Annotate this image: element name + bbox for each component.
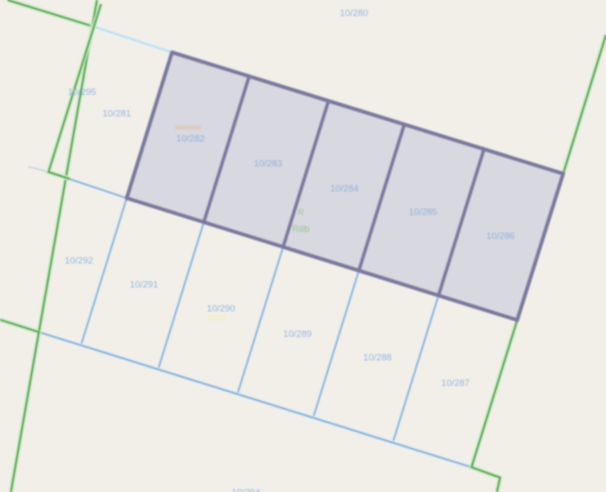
- svg-text:10/281: 10/281: [102, 109, 130, 119]
- svg-text:10/292: 10/292: [65, 255, 93, 265]
- svg-text:10/280: 10/280: [340, 8, 368, 18]
- svg-text:10/282: 10/282: [176, 134, 204, 144]
- svg-text:10/288: 10/288: [363, 353, 391, 363]
- svg-text:10/283: 10/283: [254, 159, 282, 169]
- svg-text:10/295: 10/295: [68, 87, 96, 97]
- svg-text:10/287: 10/287: [441, 378, 469, 388]
- svg-text:10/294: 10/294: [232, 488, 260, 492]
- svg-text:10/286: 10/286: [486, 231, 514, 241]
- svg-text:Rillb: Rillb: [292, 224, 309, 234]
- svg-text:R: R: [298, 207, 304, 217]
- svg-text:10/284: 10/284: [330, 183, 358, 193]
- svg-text:10/291: 10/291: [130, 280, 158, 290]
- svg-text:10/289: 10/289: [283, 329, 311, 339]
- svg-text:10/285: 10/285: [409, 207, 437, 217]
- svg-text:10/290: 10/290: [207, 304, 235, 314]
